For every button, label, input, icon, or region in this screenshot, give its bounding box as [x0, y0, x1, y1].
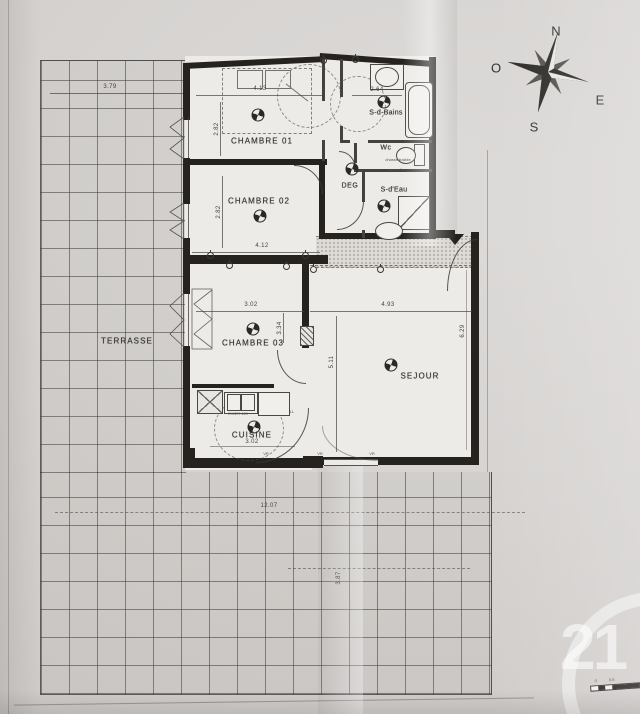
appliance-icon — [197, 390, 223, 414]
ceiling-light-icon — [254, 210, 267, 223]
duct-icon — [300, 326, 314, 346]
dimension-line — [196, 311, 304, 312]
dimension-terrasse-bottom-depth: 3.87 — [336, 571, 342, 584]
window — [188, 294, 189, 346]
ceiling-light-icon — [247, 323, 260, 336]
wall — [183, 238, 190, 294]
partition — [362, 230, 365, 238]
wall — [183, 64, 190, 120]
window-casement-icon — [167, 292, 185, 348]
dimension-chambre01-width: 4.13 — [253, 86, 266, 92]
dimension-sejour-depth: 6.29 — [460, 324, 466, 337]
room-label-chambre01: CHAMBRE 01 — [231, 137, 293, 146]
socket-icon — [226, 262, 233, 269]
partition — [322, 140, 325, 161]
dimension-line — [192, 252, 320, 253]
room-label-chambre02: CHAMBRE 02 — [228, 197, 290, 206]
ceiling-light-icon — [378, 200, 391, 213]
partition — [362, 172, 365, 202]
dimension-chambre03-width: 3.02 — [244, 302, 257, 308]
scale-bar-half: 0.5 — [609, 678, 615, 683]
room-label-sdeau: S-d'Eau — [381, 187, 408, 194]
dimension-cuisine-width: 3.02 — [245, 439, 258, 445]
compass-label-south: S — [530, 120, 539, 135]
socket-icon — [207, 252, 214, 259]
dimension-line — [283, 313, 284, 343]
dimension-line — [210, 446, 295, 447]
ceiling-light-icon — [346, 163, 359, 176]
annotation-sink: EVIER 120 — [228, 412, 248, 417]
dimension-line — [222, 176, 223, 248]
partition — [368, 140, 432, 143]
socket-icon — [352, 56, 359, 63]
room-label-sdb: S-d-Bains — [369, 110, 402, 117]
dimension-line — [336, 316, 337, 452]
dimension-line — [55, 512, 525, 513]
window-casement-icon — [167, 202, 185, 240]
partition — [340, 140, 350, 143]
wall — [319, 165, 325, 239]
window — [188, 118, 189, 158]
dimension-line — [310, 311, 472, 312]
paper-edge-bottom — [14, 697, 534, 705]
compass-label-west: O — [491, 61, 501, 76]
paper-shadow-left — [0, 0, 40, 714]
wall — [183, 159, 327, 165]
wall — [183, 346, 190, 464]
room-label-terrasse: TERRASSE — [101, 337, 153, 346]
dimension-chambre02-width: 4.12 — [255, 243, 268, 249]
wall — [303, 456, 323, 468]
boundary-line — [487, 150, 488, 472]
socket-icon — [320, 57, 327, 64]
compass-rose-icon — [483, 12, 613, 132]
ceiling-light-icon — [378, 96, 391, 109]
dimension-chambre02-depth: 2.82 — [216, 205, 222, 218]
annotation-wc-note: chasse fusible — [385, 158, 410, 163]
paper-edge-left — [8, 0, 9, 714]
annotation-shutter: VR — [369, 452, 375, 457]
partition — [354, 143, 357, 163]
terrace-tiles-left — [40, 60, 186, 473]
brand-watermark-number: 21 — [560, 610, 625, 684]
ceiling-light-icon — [252, 109, 265, 122]
room-label-wc: Wc — [380, 145, 391, 152]
dimension-terrasse-width: 3.79 — [103, 84, 116, 90]
hob-icon — [258, 392, 290, 416]
room-label-sejour: SEJOUR — [400, 372, 439, 381]
dimension-chambre01-depth: 2.82 — [214, 122, 220, 135]
dimension-sdb-width: 2.64 — [370, 87, 383, 93]
annotation-shutter: VR — [317, 452, 323, 457]
dimension-line — [352, 95, 402, 96]
dimension-line — [50, 93, 183, 94]
socket-icon — [310, 266, 317, 273]
annotation-wc-note: maquette — [388, 168, 405, 173]
sink-bowl — [241, 394, 255, 411]
window-casement-icon — [167, 116, 185, 160]
dimension-line — [288, 568, 470, 569]
window — [188, 204, 189, 238]
dimension-line — [466, 270, 467, 450]
washbasin-icon — [375, 222, 403, 240]
annotation-washing-machine: LL — [290, 410, 294, 415]
bathtub-inner — [408, 85, 430, 135]
socket-icon — [302, 252, 309, 259]
floor-plan-photo: TERRASSE — [0, 0, 640, 714]
compass-label-north: N — [551, 24, 560, 39]
washbasin-bowl — [375, 67, 399, 87]
room-label-deg: DEG — [342, 183, 359, 190]
scale-bar-zero: 0 — [595, 679, 598, 684]
sink-bowl — [227, 394, 241, 411]
dimension-sejour-width: 4.93 — [381, 302, 394, 308]
compass-label-east: E — [596, 93, 605, 108]
dimension-line — [220, 102, 221, 156]
dimension-sejour-depth-inner: 5.11 — [329, 356, 335, 369]
dimension-chambre03-depth: 3.34 — [277, 321, 283, 334]
socket-icon — [283, 263, 290, 270]
ceiling-light-icon — [385, 359, 398, 372]
socket-icon — [377, 266, 384, 273]
wall — [183, 448, 195, 464]
wall — [192, 384, 274, 388]
shower-icon — [398, 196, 430, 230]
bay-window-line — [310, 265, 472, 267]
wardrobe-icon — [191, 288, 213, 350]
dimension-line — [196, 95, 324, 96]
dimension-terrasse-bottom-width: 12.07 — [260, 503, 277, 509]
annotation-shutter: VR — [263, 452, 269, 457]
room-label-chambre03: CHAMBRE 03 — [222, 339, 284, 348]
